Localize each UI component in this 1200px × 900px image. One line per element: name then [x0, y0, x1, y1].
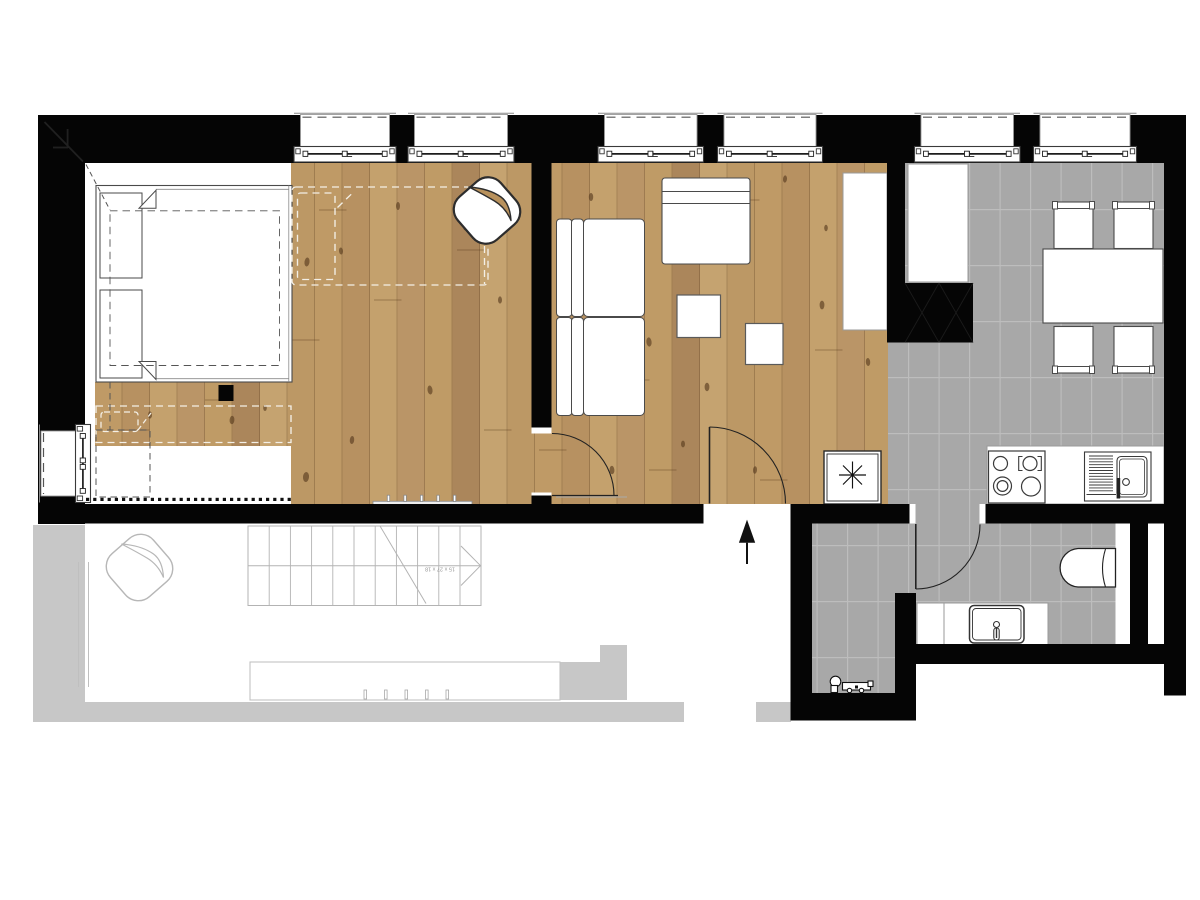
- svg-text:15 x 27 x 18: 15 x 27 x 18: [425, 566, 455, 572]
